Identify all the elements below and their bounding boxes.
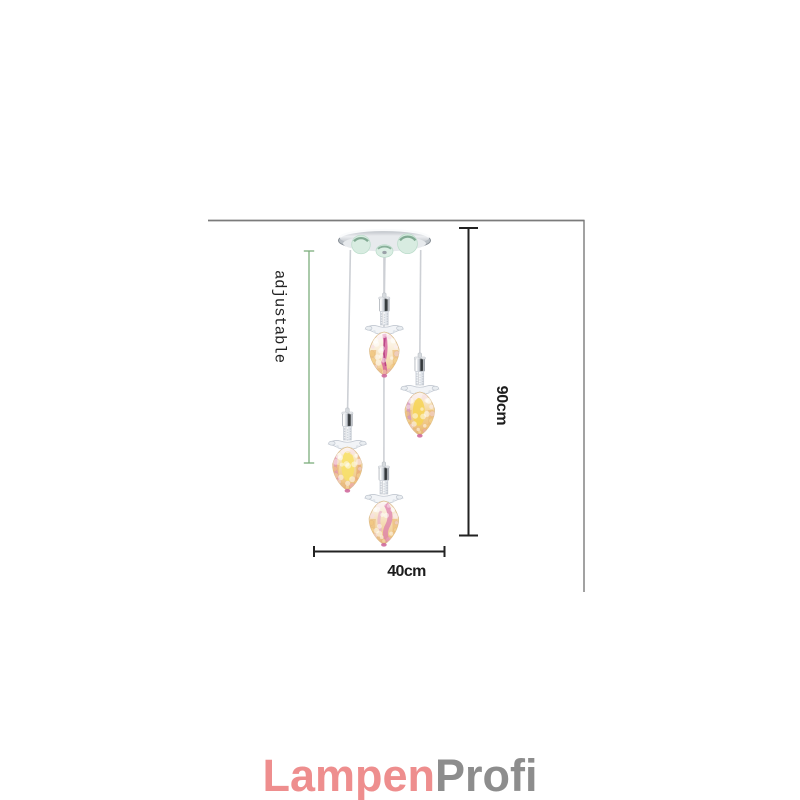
svg-text:90cm: 90cm (493, 386, 510, 426)
svg-text:40cm: 40cm (387, 563, 426, 580)
svg-text:adjustable: adjustable (271, 270, 289, 363)
